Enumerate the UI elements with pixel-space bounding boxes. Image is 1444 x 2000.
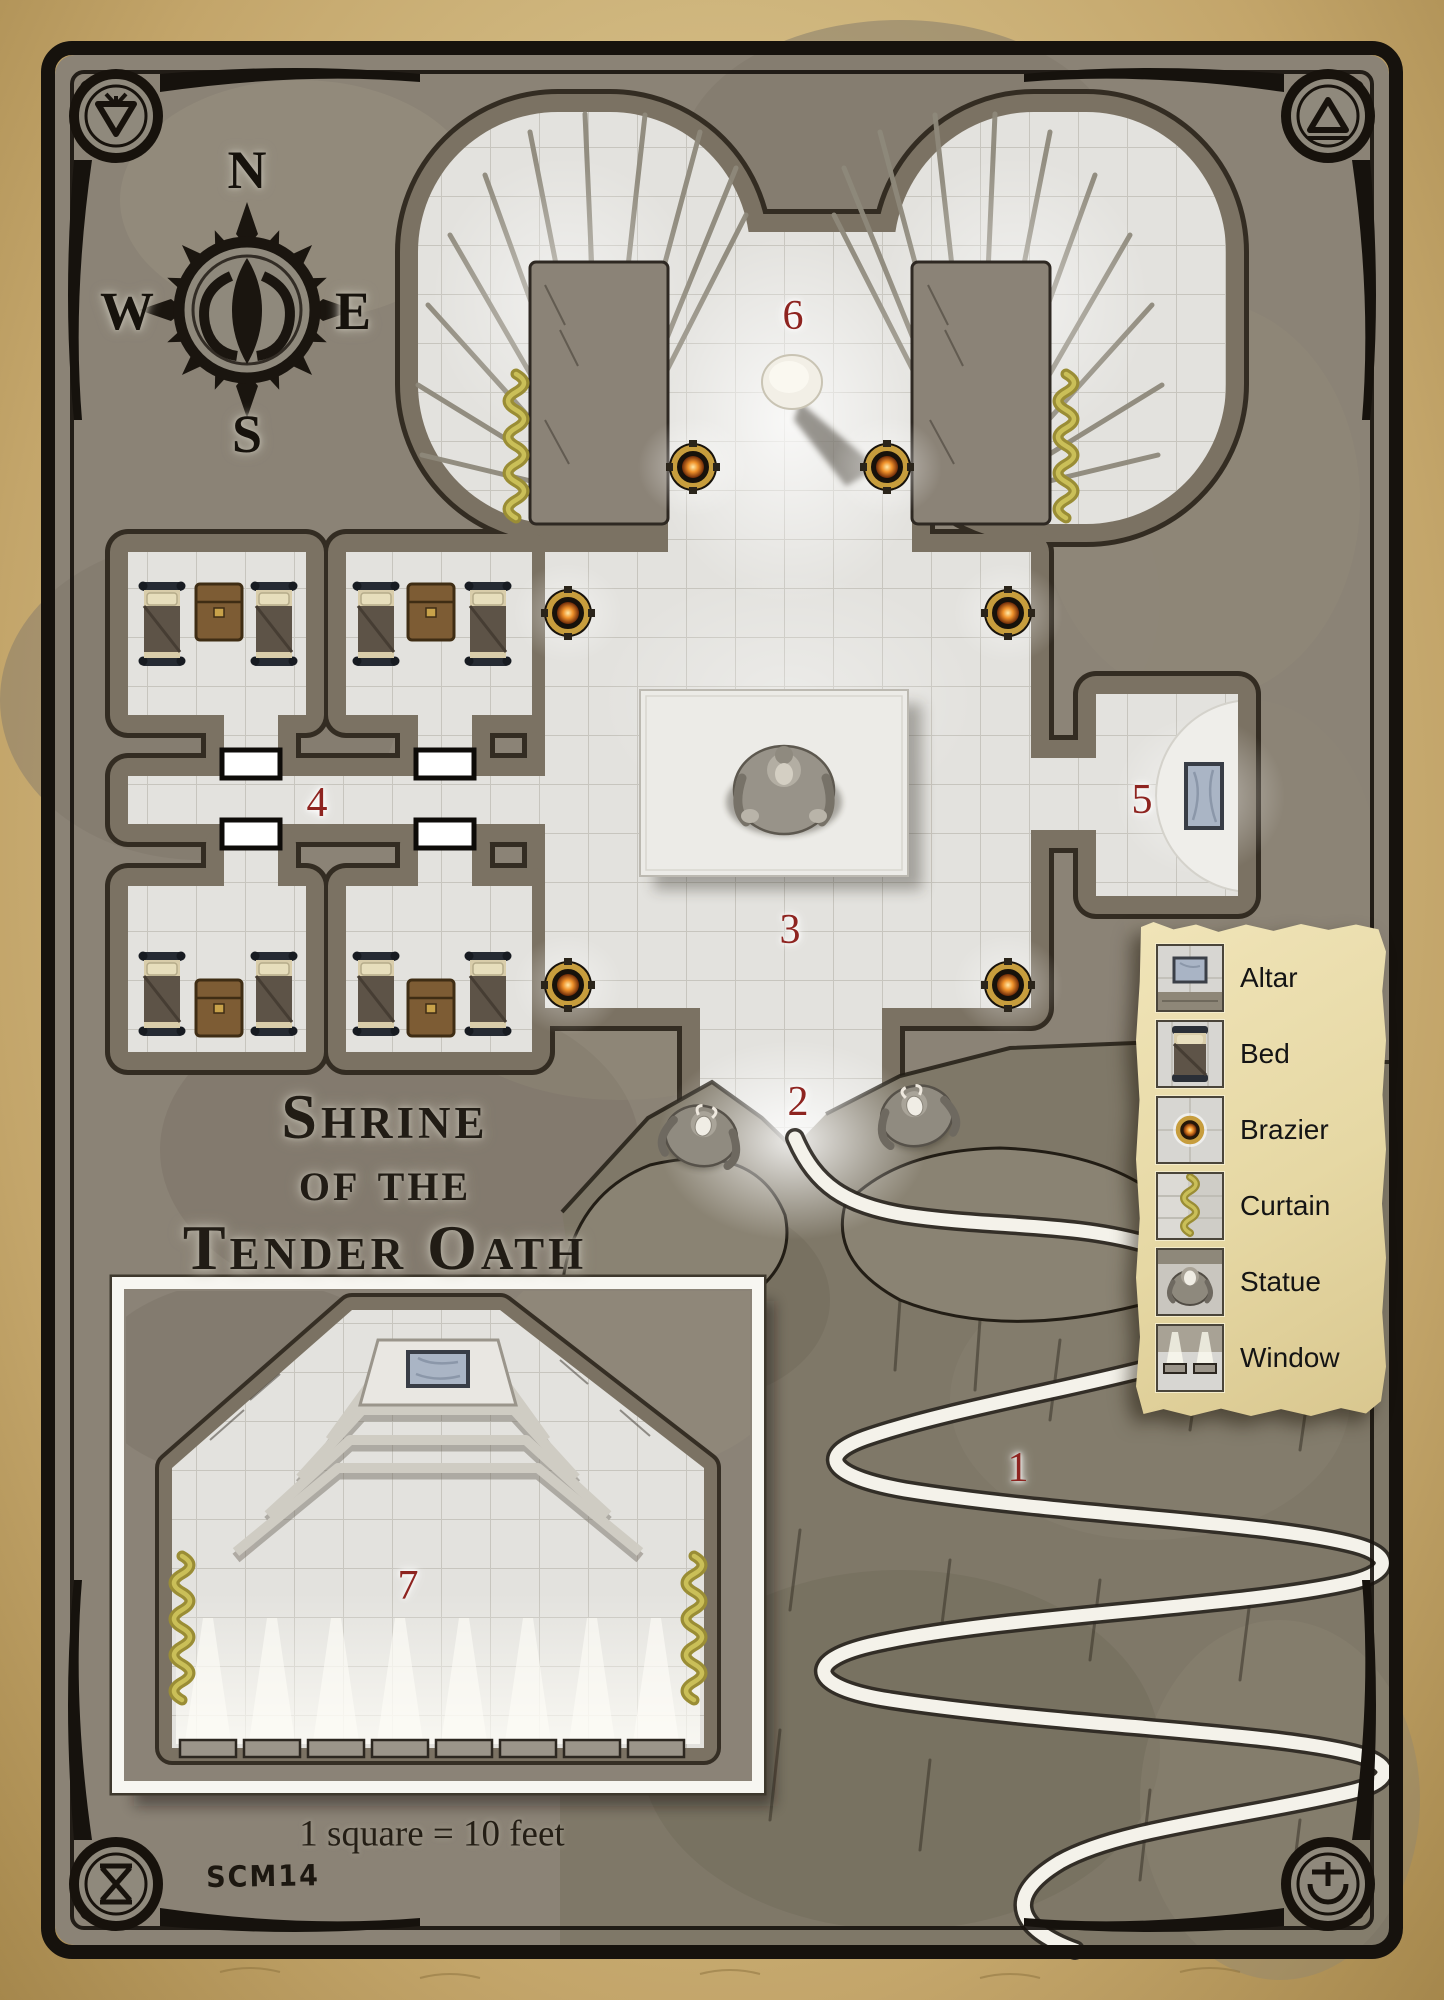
legend-label: Statue (1240, 1266, 1321, 1298)
statue-icon (1156, 1248, 1224, 1316)
door-icon (222, 750, 280, 778)
map-title: Shrine of the Tender Oath (183, 1082, 587, 1282)
chest-icon (408, 980, 454, 1036)
room-label-7: 7 (398, 1562, 419, 1610)
inset-map (90, 1250, 790, 1806)
bed-icon (251, 582, 298, 667)
legend-item-statue: Statue (1156, 1244, 1386, 1320)
altar-icon (1186, 764, 1222, 828)
bed-icon (465, 952, 512, 1037)
window-icon (1156, 1324, 1224, 1392)
legend-label: Bed (1240, 1038, 1290, 1070)
compass-south-label: S (232, 403, 262, 465)
bed-icon (139, 582, 186, 667)
cartographer-signature: SCM14 (206, 1859, 320, 1894)
altar-icon (1156, 944, 1224, 1012)
chest-icon (408, 584, 454, 640)
brazier-icon (1156, 1096, 1224, 1164)
room-label-1: 1 (1008, 1444, 1029, 1492)
door-icon (416, 820, 474, 848)
legend-panel: Altar Bed (1136, 922, 1386, 1416)
legend-item-bed: Bed (1156, 1016, 1386, 1092)
legend-label: Brazier (1240, 1114, 1329, 1146)
door-icon (416, 750, 474, 778)
title-line-1: Shrine (183, 1082, 587, 1151)
compass-north-label: N (228, 139, 267, 201)
bed-icon (1156, 1020, 1224, 1088)
corner-medallion-chalice-icon (1286, 1842, 1370, 1926)
corner-medallion-mountain-icon (1286, 74, 1370, 158)
compass-west-label: W (100, 280, 154, 342)
corner-medallion-tree-icon (74, 74, 158, 158)
bed-icon (353, 582, 400, 667)
legend-item-curtain: Curtain (1156, 1168, 1386, 1244)
bed-icon (139, 952, 186, 1037)
map-page: N W E S 1 2 3 4 5 6 7 Shrine of the Tend… (0, 0, 1444, 2000)
curtain-icon (1156, 1172, 1224, 1240)
margin-doodles (220, 1968, 1240, 1978)
chest-icon (196, 584, 242, 640)
room-label-3: 3 (780, 906, 801, 954)
bed-icon (251, 952, 298, 1037)
bed-icon (353, 952, 400, 1037)
legend-label: Altar (1240, 962, 1298, 994)
legend-label: Curtain (1240, 1190, 1330, 1222)
room-label-4: 4 (307, 779, 328, 827)
scale-note: 1 square = 10 feet (299, 1813, 564, 1856)
altar-icon (408, 1352, 468, 1386)
legend-item-brazier: Brazier (1156, 1092, 1386, 1168)
room-label-6: 6 (783, 292, 804, 340)
title-line-2: of the (183, 1151, 587, 1213)
bed-icon (465, 582, 512, 667)
chest-icon (196, 980, 242, 1036)
title-line-3: Tender Oath (183, 1213, 587, 1282)
room-label-2: 2 (788, 1078, 809, 1126)
legend-item-window: Window (1156, 1320, 1386, 1396)
legend-item-altar: Altar (1156, 940, 1386, 1016)
room-label-5: 5 (1132, 776, 1153, 824)
corner-medallion-hourglass-icon (74, 1842, 158, 1926)
compass-east-label: E (335, 280, 371, 342)
door-icon (222, 820, 280, 848)
legend-label: Window (1240, 1342, 1340, 1374)
